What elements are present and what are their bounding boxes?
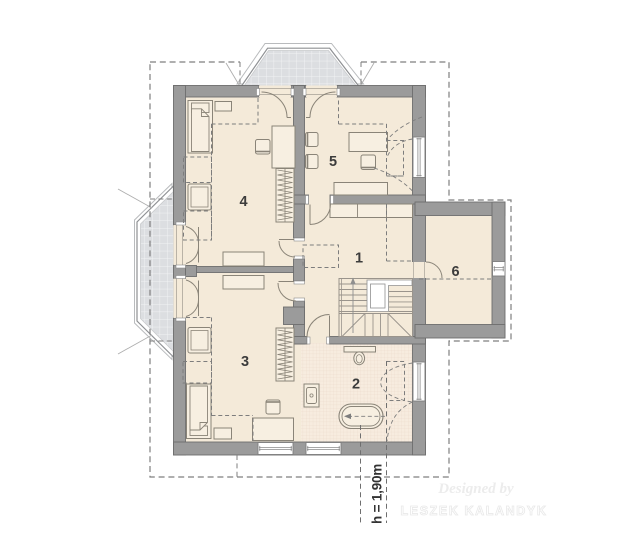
- svg-text:1: 1: [355, 251, 363, 267]
- svg-text:Designed by: Designed by: [437, 481, 514, 497]
- svg-text:6: 6: [451, 264, 459, 280]
- svg-text:2: 2: [352, 377, 360, 393]
- svg-text:4: 4: [239, 194, 247, 210]
- svg-text:5: 5: [329, 154, 337, 170]
- svg-text:3: 3: [241, 354, 249, 370]
- svg-text:LESZEK KALANDYK: LESZEK KALANDYK: [401, 504, 548, 518]
- svg-text:h = 1,90m: h = 1,90m: [370, 464, 385, 524]
